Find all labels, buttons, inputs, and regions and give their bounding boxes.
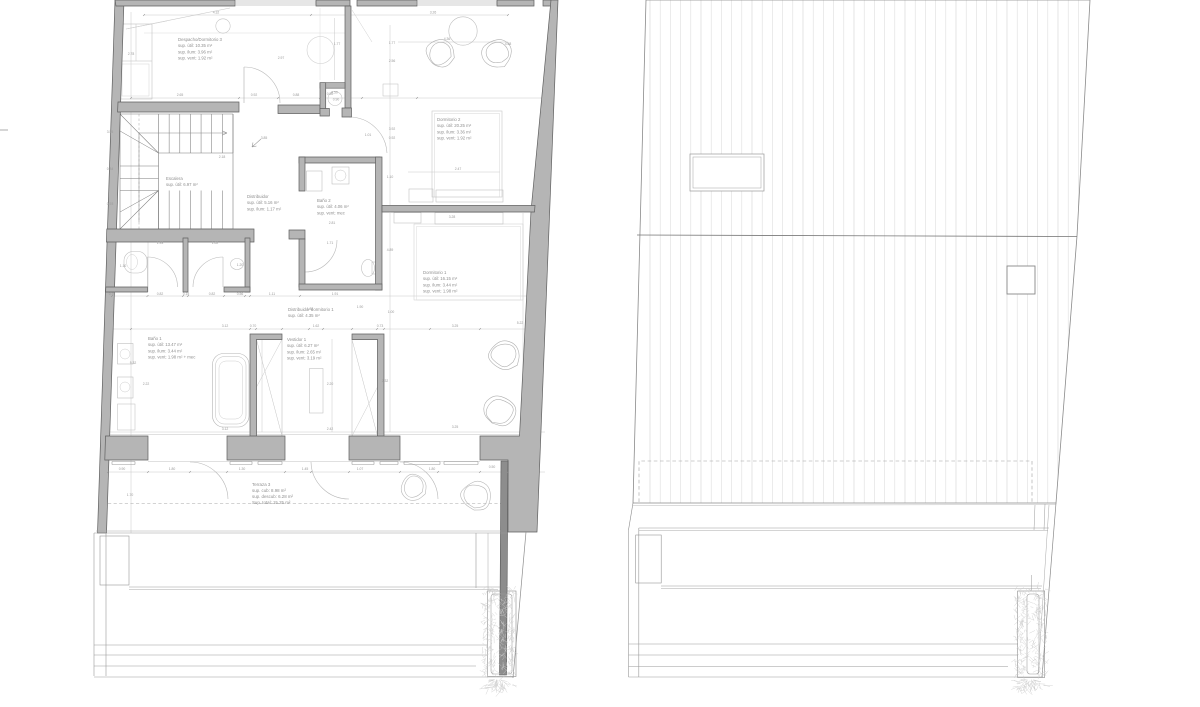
svg-text:3.85: 3.85 [261, 136, 268, 140]
svg-text:3.55: 3.55 [107, 130, 114, 134]
svg-text:Terraza 3: Terraza 3 [252, 482, 271, 487]
svg-text:sup. útil: 5.16 m²: sup. útil: 5.16 m² [247, 200, 279, 205]
svg-text:1.00: 1.00 [388, 310, 395, 314]
svg-text:Baño 1: Baño 1 [148, 336, 162, 341]
svg-text:0.92: 0.92 [251, 93, 258, 97]
svg-text:sup. útil: 4.06 m²: sup. útil: 4.06 m² [317, 204, 349, 209]
svg-text:sup. descub: 6.28 m²: sup. descub: 6.28 m² [252, 494, 294, 499]
svg-text:sup. vent: 3.19 m²: sup. vent: 3.19 m² [287, 356, 322, 361]
svg-text:sup. vent: 1.98 m² + mec: sup. vent: 1.98 m² + mec [148, 355, 196, 360]
svg-text:1.10: 1.10 [387, 175, 394, 179]
svg-text:0.50: 0.50 [327, 92, 334, 96]
svg-text:4.58: 4.58 [505, 42, 512, 46]
svg-text:0.90: 0.90 [119, 467, 126, 471]
svg-text:2.56: 2.56 [389, 59, 396, 63]
svg-text:2.18: 2.18 [219, 155, 226, 159]
svg-text:2.97: 2.97 [278, 56, 285, 60]
svg-text:sup. ilum: 3.44 m²: sup. ilum: 3.44 m² [148, 348, 183, 353]
svg-text:0.50: 0.50 [489, 465, 496, 469]
svg-text:Escalera: Escalera [166, 176, 183, 181]
svg-text:3.25: 3.25 [452, 425, 459, 429]
svg-text:sup. útil: 4.35 m²: sup. útil: 4.35 m² [288, 313, 320, 318]
svg-text:sup. útil: 6.97 m²: sup. útil: 6.97 m² [166, 182, 198, 187]
svg-text:sup. ilum: 3.36 m²: sup. ilum: 3.36 m² [437, 129, 472, 134]
svg-text:3.92: 3.92 [389, 127, 396, 131]
svg-text:0.84: 0.84 [107, 167, 114, 171]
svg-text:1.88: 1.88 [307, 307, 314, 311]
svg-text:sup. vent: mec: sup. vent: mec [317, 210, 346, 215]
svg-text:0.88: 0.88 [293, 93, 300, 97]
svg-text:sup. útil: 6.27 m²: sup. útil: 6.27 m² [287, 343, 319, 348]
svg-text:1.93: 1.93 [157, 241, 164, 245]
svg-text:1.45: 1.45 [302, 467, 309, 471]
svg-text:0.90: 0.90 [333, 98, 340, 102]
svg-text:1.80: 1.80 [169, 467, 176, 471]
svg-text:sup. vent: 1.98 m²: sup. vent: 1.98 m² [423, 289, 458, 294]
svg-text:3.28: 3.28 [449, 215, 456, 219]
svg-text:0.70: 0.70 [250, 324, 257, 328]
svg-text:1.90: 1.90 [357, 305, 364, 309]
svg-text:2.47: 2.47 [455, 167, 462, 171]
svg-text:0.82: 0.82 [209, 292, 216, 296]
svg-text:2.42: 2.42 [327, 427, 334, 431]
svg-text:sup. ilum: 3.44 m²: sup. ilum: 3.44 m² [423, 282, 458, 287]
svg-text:9.32: 9.32 [130, 361, 137, 365]
svg-text:sup. ilum: 3.96 m²: sup. ilum: 3.96 m² [178, 49, 213, 54]
svg-text:0.82: 0.82 [157, 292, 164, 296]
svg-text:Distribuidor: Distribuidor [247, 194, 269, 199]
svg-text:1.02: 1.02 [212, 241, 219, 245]
svg-text:1.91: 1.91 [332, 292, 339, 296]
svg-text:sup. cub: 8.98 m²: sup. cub: 8.98 m² [252, 488, 286, 493]
svg-text:1.11: 1.11 [269, 292, 275, 296]
svg-text:4.36: 4.36 [444, 37, 451, 41]
svg-text:1.07: 1.07 [357, 467, 364, 471]
svg-text:Vestidor 1: Vestidor 1 [287, 337, 307, 342]
svg-text:3.12: 3.12 [222, 324, 229, 328]
svg-text:sup. ilum: 1.17 m²: sup. ilum: 1.17 m² [247, 206, 282, 211]
svg-text:Despacho/Dormitorio 3: Despacho/Dormitorio 3 [178, 37, 223, 42]
svg-text:3.12: 3.12 [222, 427, 229, 431]
svg-text:2.78: 2.78 [128, 52, 135, 56]
svg-text:3.26: 3.26 [430, 11, 437, 15]
svg-text:Dormitorio 1: Dormitorio 1 [423, 270, 447, 275]
svg-text:1.30: 1.30 [239, 467, 246, 471]
svg-text:1.71: 1.71 [327, 241, 334, 245]
svg-text:5.22: 5.22 [517, 321, 524, 325]
svg-text:0.93: 0.93 [107, 202, 114, 206]
svg-text:3.25: 3.25 [452, 324, 459, 328]
svg-text:4.89: 4.89 [387, 248, 394, 252]
svg-text:Sup. total: 15.25 m²: Sup. total: 15.25 m² [252, 500, 291, 505]
svg-text:sup. vent: 1.92 m²: sup. vent: 1.92 m² [437, 136, 472, 141]
svg-text:2.32: 2.32 [382, 379, 389, 383]
svg-text:sup. útil: 16.15 m²: sup. útil: 16.15 m² [423, 276, 458, 281]
svg-text:1.62: 1.62 [313, 324, 320, 328]
svg-text:Dormitorio 2: Dormitorio 2 [437, 117, 461, 122]
svg-text:2.81: 2.81 [329, 221, 336, 225]
svg-text:0.75: 0.75 [109, 292, 116, 296]
svg-text:4.32: 4.32 [213, 11, 220, 15]
svg-text:sup. útil: 20.25 m²: sup. útil: 20.25 m² [437, 123, 472, 128]
svg-text:2.65: 2.65 [177, 93, 184, 97]
svg-text:1.01: 1.01 [365, 133, 372, 137]
svg-text:1.20: 1.20 [237, 263, 244, 267]
svg-text:1.10: 1.10 [120, 264, 127, 268]
svg-text:1.77: 1.77 [334, 42, 341, 46]
svg-text:0.92: 0.92 [389, 136, 396, 140]
svg-text:1.80: 1.80 [429, 467, 436, 471]
svg-text:1.77: 1.77 [389, 41, 396, 45]
svg-text:sup. útil: 10.35 m²: sup. útil: 10.35 m² [178, 43, 213, 48]
svg-text:sup. útil: 13.47 m²: sup. útil: 13.47 m² [148, 342, 183, 347]
svg-text:2.20: 2.20 [327, 382, 334, 386]
svg-text:2.22: 2.22 [143, 382, 150, 386]
svg-text:sup. vent: 1.92 m²: sup. vent: 1.92 m² [178, 56, 213, 61]
svg-text:0.56: 0.56 [237, 292, 244, 296]
svg-text:sup. ilum: 2.65 m²: sup. ilum: 2.65 m² [287, 349, 322, 354]
svg-text:0.73: 0.73 [377, 324, 384, 328]
svg-text:1.70: 1.70 [127, 493, 134, 497]
svg-text:Baño 2: Baño 2 [317, 198, 331, 203]
